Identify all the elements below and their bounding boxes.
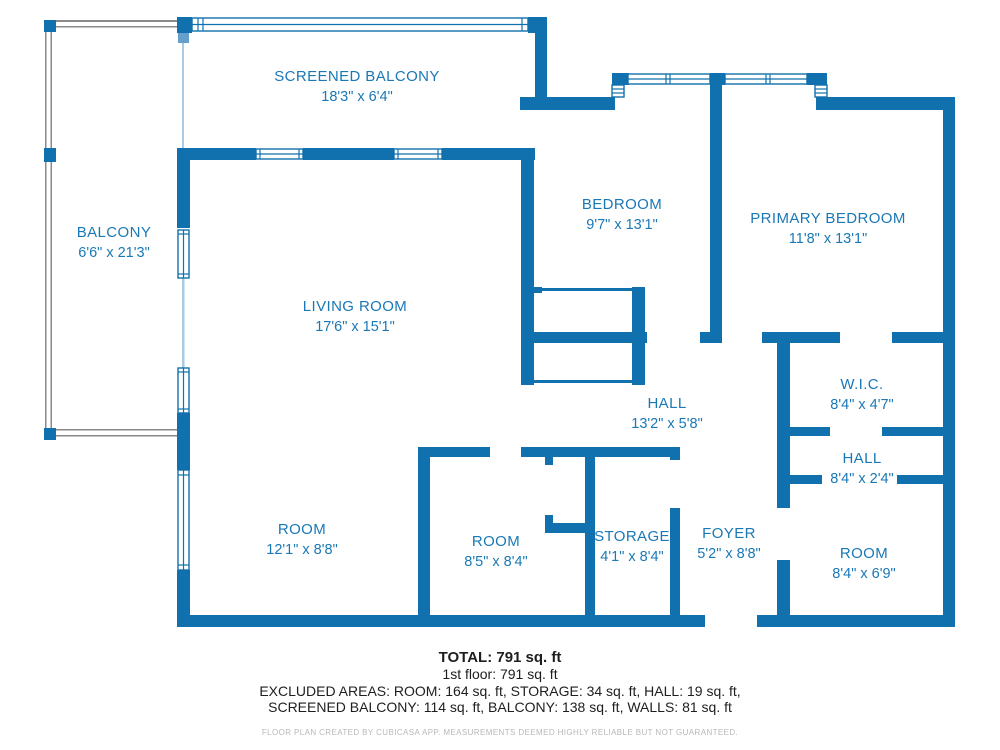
wall bbox=[710, 85, 722, 332]
wall bbox=[892, 332, 943, 343]
room-dimensions: 13'2" x 5'8" bbox=[631, 414, 702, 435]
floor-area: 1st floor: 791 sq. ft bbox=[0, 666, 1000, 683]
room-name: BEDROOM bbox=[582, 194, 662, 215]
railing-post bbox=[44, 428, 56, 440]
railing-line bbox=[51, 32, 53, 428]
wall bbox=[177, 413, 190, 470]
wall bbox=[762, 332, 840, 343]
wall bbox=[545, 456, 553, 465]
room-label-balcony: BALCONY 6'6" x 21'3" bbox=[77, 222, 152, 264]
living-room-top-window-2 bbox=[394, 149, 442, 159]
railing-line bbox=[45, 32, 47, 428]
railing-line bbox=[56, 26, 177, 28]
room-name: HALL bbox=[830, 448, 893, 469]
room-name: FOYER bbox=[697, 523, 760, 544]
railing-line bbox=[56, 429, 177, 431]
wall bbox=[521, 447, 677, 457]
screen-divider-line bbox=[182, 33, 184, 148]
room-label-wic: W.I.C. 8'4" x 4'7" bbox=[830, 374, 893, 416]
room-name: ROOM bbox=[266, 519, 337, 540]
room-name: ROOM bbox=[464, 531, 527, 552]
room-dimensions: 5'2" x 8'8" bbox=[697, 544, 760, 565]
primary-bedroom-corner-window-right bbox=[815, 85, 827, 97]
bedroom-top-window bbox=[628, 74, 710, 84]
room-name: HALL bbox=[631, 393, 702, 414]
area-summary: TOTAL: 791 sq. ft 1st floor: 791 sq. ft … bbox=[0, 649, 1000, 737]
wall bbox=[612, 73, 629, 85]
room-label-storage: STORAGE 4'1" x 8'4" bbox=[594, 526, 670, 568]
left-wall-window-2 bbox=[178, 368, 189, 413]
room-name: SCREENED BALCONY bbox=[274, 66, 440, 87]
screened-balcony-top-window bbox=[192, 18, 528, 31]
room-dimensions: 6'6" x 21'3" bbox=[77, 243, 152, 264]
wall bbox=[897, 475, 943, 484]
wall bbox=[520, 97, 615, 110]
wall bbox=[177, 148, 256, 160]
railing-line bbox=[56, 20, 177, 22]
wall bbox=[777, 560, 790, 615]
wall bbox=[816, 97, 955, 110]
living-room-top-window-1 bbox=[256, 149, 303, 159]
room-label-room-2: ROOM 8'5" x 8'4" bbox=[464, 531, 527, 573]
wall bbox=[777, 427, 830, 436]
room-dimensions: 18'3" x 6'4" bbox=[274, 87, 440, 108]
closet-door-line bbox=[534, 380, 632, 383]
room-name: LIVING ROOM bbox=[303, 296, 407, 317]
room-name: ROOM bbox=[832, 543, 895, 564]
wall bbox=[178, 33, 189, 43]
wall bbox=[807, 73, 827, 85]
room-dimensions: 4'1" x 8'4" bbox=[594, 547, 670, 568]
wall bbox=[418, 447, 490, 457]
room-dimensions: 9'7" x 13'1" bbox=[582, 215, 662, 236]
left-wall-window-3 bbox=[178, 470, 189, 570]
bedroom-corner-window-left bbox=[612, 85, 624, 97]
room-dimensions: 8'4" x 6'9" bbox=[832, 564, 895, 585]
wall bbox=[528, 17, 547, 33]
room-label-hall-2: HALL 8'4" x 2'4" bbox=[830, 448, 893, 490]
railing-line bbox=[56, 435, 177, 437]
room-dimensions: 12'1" x 8'8" bbox=[266, 540, 337, 561]
room-label-foyer: FOYER 5'2" x 8'8" bbox=[697, 523, 760, 565]
room-dimensions: 11'8" x 13'1" bbox=[750, 229, 905, 250]
room-name: STORAGE bbox=[594, 526, 670, 547]
room-name: PRIMARY BEDROOM bbox=[750, 208, 905, 229]
room-dimensions: 17'6" x 15'1" bbox=[303, 317, 407, 338]
floor-plan: SCREENED BALCONY 18'3" x 6'4" BALCONY 6'… bbox=[0, 0, 1000, 750]
room-name: W.I.C. bbox=[830, 374, 893, 395]
wall bbox=[545, 523, 595, 533]
room-dimensions: 8'5" x 8'4" bbox=[464, 552, 527, 573]
wall bbox=[177, 615, 705, 627]
room-label-bedroom: BEDROOM 9'7" x 13'1" bbox=[582, 194, 662, 236]
wall bbox=[757, 615, 955, 627]
excluded-areas-line-1: EXCLUDED AREAS: ROOM: 164 sq. ft, STORAG… bbox=[0, 683, 1000, 700]
wall bbox=[521, 148, 534, 385]
disclaimer: FLOOR PLAN CREATED BY CUBICASA APP. MEAS… bbox=[0, 728, 1000, 737]
wall bbox=[710, 73, 725, 85]
wall bbox=[882, 427, 943, 436]
wall bbox=[670, 447, 680, 460]
room-label-room-1: ROOM 12'1" x 8'8" bbox=[266, 519, 337, 561]
railing-post bbox=[44, 20, 56, 32]
wall bbox=[670, 508, 680, 615]
room-label-room-3: ROOM 8'4" x 6'9" bbox=[832, 543, 895, 585]
room-label-hall-1: HALL 13'2" x 5'8" bbox=[631, 393, 702, 435]
closet-door-line bbox=[534, 288, 632, 291]
railing-post bbox=[44, 148, 56, 162]
room-label-living-room: LIVING ROOM 17'6" x 15'1" bbox=[303, 296, 407, 338]
room-dimensions: 8'4" x 2'4" bbox=[830, 469, 893, 490]
sliding-door-line bbox=[182, 278, 185, 368]
wall bbox=[521, 332, 647, 343]
room-label-primary-bedroom: PRIMARY BEDROOM 11'8" x 13'1" bbox=[750, 208, 905, 250]
wall bbox=[177, 17, 192, 33]
room-label-screened-balcony: SCREENED BALCONY 18'3" x 6'4" bbox=[274, 66, 440, 108]
wall bbox=[777, 475, 822, 484]
wall bbox=[943, 97, 955, 627]
primary-bedroom-top-window bbox=[725, 74, 807, 84]
excluded-areas-line-2: SCREENED BALCONY: 114 sq. ft, BALCONY: 1… bbox=[0, 699, 1000, 716]
room-name: BALCONY bbox=[77, 222, 152, 243]
left-wall-window-1 bbox=[178, 230, 189, 278]
room-dimensions: 8'4" x 4'7" bbox=[830, 395, 893, 416]
wall bbox=[700, 332, 722, 343]
wall bbox=[177, 160, 190, 228]
wall bbox=[303, 148, 394, 160]
wall bbox=[418, 457, 430, 615]
total-area: TOTAL: 791 sq. ft bbox=[0, 649, 1000, 666]
